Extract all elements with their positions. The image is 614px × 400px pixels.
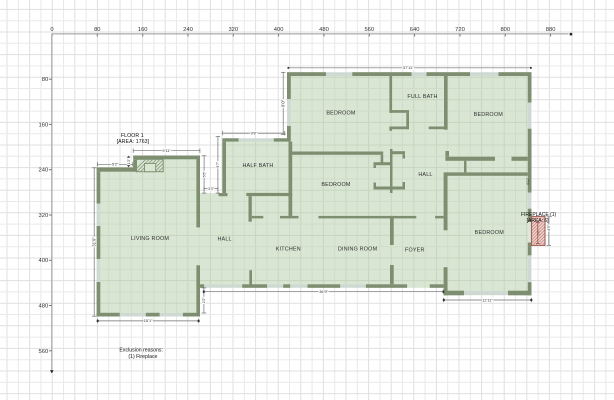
- svg-text:9’0”: 9’0”: [281, 99, 286, 107]
- svg-text:80: 80: [94, 27, 100, 33]
- svg-text:9’7”: 9’7”: [216, 161, 220, 168]
- svg-text:9’11”: 9’11”: [162, 148, 171, 153]
- svg-text:5’5”: 5’5”: [202, 171, 206, 178]
- svg-text:31’9”: 31’9”: [92, 237, 97, 247]
- svg-text:480: 480: [39, 304, 49, 310]
- svg-text:160: 160: [39, 122, 49, 128]
- svg-text:12’11”: 12’11”: [482, 297, 493, 302]
- svg-text:15’1”: 15’1”: [144, 318, 153, 323]
- svg-text:BEDROOM: BEDROOM: [326, 110, 356, 116]
- svg-text:9’8”: 9’8”: [250, 130, 257, 135]
- svg-text:2’2”: 2’2”: [202, 297, 206, 304]
- svg-text:HALF BATH: HALF BATH: [242, 163, 273, 169]
- svg-text:37’11”: 37’11”: [403, 65, 414, 70]
- svg-text:36’9”: 36’9”: [319, 289, 328, 294]
- svg-text:3’3”: 3’3”: [208, 187, 214, 191]
- svg-text:LIVING ROOM: LIVING ROOM: [131, 236, 169, 242]
- svg-text:BEDROOM: BEDROOM: [475, 230, 505, 236]
- svg-text:320: 320: [39, 213, 49, 219]
- svg-text:560: 560: [39, 349, 49, 355]
- svg-text:720: 720: [455, 27, 465, 33]
- svg-text:1’2”: 1’2”: [127, 159, 131, 164]
- svg-text:0: 0: [50, 27, 53, 33]
- svg-text:HALL: HALL: [217, 236, 231, 242]
- svg-text:640: 640: [410, 27, 420, 33]
- svg-text:(1) Fireplace: (1) Fireplace: [128, 354, 157, 360]
- svg-text:[AREA: 1763]: [AREA: 1763]: [117, 139, 150, 145]
- svg-text:FOYER: FOYER: [405, 248, 425, 254]
- svg-text:160: 160: [138, 27, 148, 33]
- svg-text:KITCHEN: KITCHEN: [276, 247, 301, 253]
- svg-text:880: 880: [546, 27, 556, 33]
- svg-text:320: 320: [228, 27, 238, 33]
- svg-text:240: 240: [39, 168, 49, 174]
- svg-text:BEDROOM: BEDROOM: [474, 112, 504, 118]
- svg-text:80: 80: [42, 77, 48, 83]
- svg-text:2’6”: 2’6”: [537, 230, 541, 236]
- svg-text:HALL: HALL: [418, 172, 432, 178]
- svg-text:[AREA: 6]: [AREA: 6]: [527, 218, 550, 224]
- svg-text:DINING ROOM: DINING ROOM: [338, 247, 378, 253]
- svg-text:400: 400: [39, 258, 49, 264]
- svg-text:240: 240: [183, 27, 193, 33]
- svg-text:4’5”: 4’5”: [547, 225, 551, 231]
- svg-text:4’11”: 4’11”: [526, 178, 530, 185]
- svg-text:800: 800: [500, 27, 510, 33]
- svg-text:400: 400: [274, 27, 284, 33]
- svg-text:560: 560: [364, 27, 374, 33]
- svg-text:FULL BATH: FULL BATH: [407, 94, 437, 100]
- svg-text:BEDROOM: BEDROOM: [321, 182, 351, 188]
- svg-text:Exclusion reasons:: Exclusion reasons:: [119, 348, 163, 354]
- svg-text:5’2”: 5’2”: [112, 162, 119, 167]
- svg-text:480: 480: [319, 27, 329, 33]
